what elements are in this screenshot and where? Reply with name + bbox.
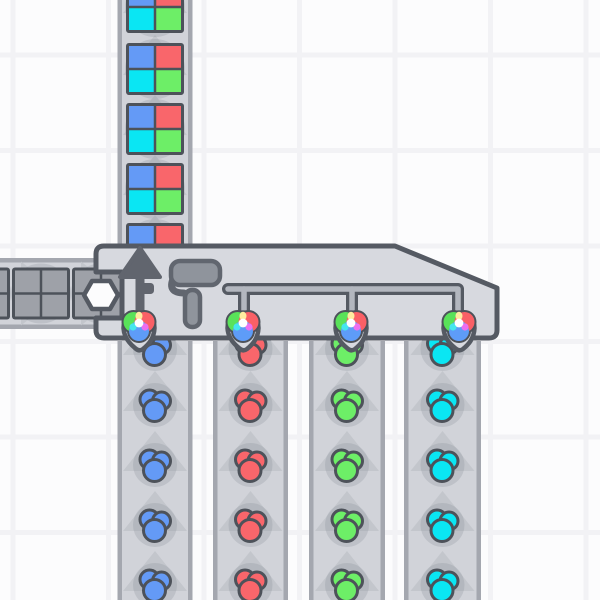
shape-quadrant-green bbox=[156, 130, 181, 152]
color-blob bbox=[431, 460, 453, 482]
shape-quadrant-blue bbox=[129, 46, 154, 68]
belt-edge bbox=[0, 325, 97, 330]
belt-color-green[interactable] bbox=[309, 315, 385, 600]
shape-quadrant-blue bbox=[129, 0, 154, 6]
shape-quadrant-green bbox=[156, 70, 181, 92]
shape-quadrant-gray bbox=[0, 295, 7, 317]
factory-scene bbox=[0, 0, 600, 600]
window-shape-item bbox=[126, 163, 184, 215]
color-item-red bbox=[236, 570, 267, 600]
belt-color-cyan[interactable] bbox=[404, 315, 481, 600]
shape-quadrant-gray bbox=[0, 271, 7, 293]
color-blob bbox=[336, 400, 358, 422]
belt-edge bbox=[118, 0, 123, 246]
belt-edge bbox=[381, 341, 386, 600]
belt-edge bbox=[477, 341, 482, 600]
mix-white-center bbox=[239, 319, 248, 328]
shape-quadrant-cyan bbox=[129, 8, 154, 30]
color-blob bbox=[144, 520, 166, 542]
belt-output-north[interactable] bbox=[118, 0, 193, 279]
color-blob bbox=[239, 400, 261, 422]
shape-quadrant-green bbox=[156, 190, 181, 212]
color-blob bbox=[336, 460, 358, 482]
shape-quadrant-gray bbox=[42, 271, 67, 293]
shape-quadrant-red bbox=[156, 46, 181, 68]
shape-quadrant-red bbox=[156, 106, 181, 128]
belt-edge bbox=[213, 341, 218, 600]
window-shape-item bbox=[126, 0, 184, 33]
window-shape-item bbox=[0, 268, 10, 320]
belt-color-blue[interactable] bbox=[118, 315, 193, 600]
shape-quadrant-green bbox=[156, 8, 181, 30]
shape-quadrant-blue bbox=[129, 106, 154, 128]
color-item-blue bbox=[140, 570, 171, 600]
color-blob bbox=[144, 400, 166, 422]
color-blob bbox=[336, 580, 358, 600]
color-item-green bbox=[332, 570, 363, 600]
mix-white-center bbox=[455, 319, 464, 328]
arrow-stub bbox=[141, 283, 154, 294]
roller-handle bbox=[185, 290, 200, 327]
belt-edge bbox=[404, 341, 409, 600]
color-blob bbox=[431, 344, 453, 366]
shape-quadrant-gray bbox=[15, 295, 40, 317]
shape-quadrant-blue bbox=[129, 166, 154, 188]
window-shape-item bbox=[126, 43, 184, 95]
window-shape-item bbox=[12, 268, 70, 320]
shape-quadrant-gray bbox=[42, 295, 67, 317]
color-blob bbox=[239, 580, 261, 600]
color-blob bbox=[144, 460, 166, 482]
mix-white-center bbox=[347, 319, 356, 328]
factory-viewport[interactable] bbox=[0, 0, 600, 600]
color-blob bbox=[239, 460, 261, 482]
color-blob bbox=[431, 400, 453, 422]
color-item-cyan bbox=[428, 570, 459, 600]
shape-input-hexagon-icon bbox=[84, 281, 118, 309]
color-blob bbox=[431, 520, 453, 542]
belt-color-red[interactable] bbox=[213, 315, 288, 600]
window-shape-item bbox=[126, 103, 184, 155]
shape-quadrant-cyan bbox=[129, 130, 154, 152]
belt-edge bbox=[0, 258, 97, 263]
roller-body bbox=[171, 261, 220, 285]
shape-quadrant-cyan bbox=[129, 190, 154, 212]
color-blob bbox=[144, 580, 166, 600]
shape-quadrant-red bbox=[156, 0, 181, 6]
color-blob bbox=[336, 520, 358, 542]
belt-edge bbox=[309, 341, 314, 600]
shape-quadrant-gray bbox=[15, 271, 40, 293]
shape-quadrant-red bbox=[156, 166, 181, 188]
color-blob bbox=[431, 580, 453, 600]
color-blob bbox=[239, 520, 261, 542]
belt-edge bbox=[284, 341, 289, 600]
belt-edge bbox=[188, 0, 193, 246]
shape-quadrant-cyan bbox=[129, 70, 154, 92]
belt-edge bbox=[118, 341, 123, 600]
mix-white-center bbox=[135, 319, 144, 328]
belt-edge bbox=[188, 341, 193, 600]
